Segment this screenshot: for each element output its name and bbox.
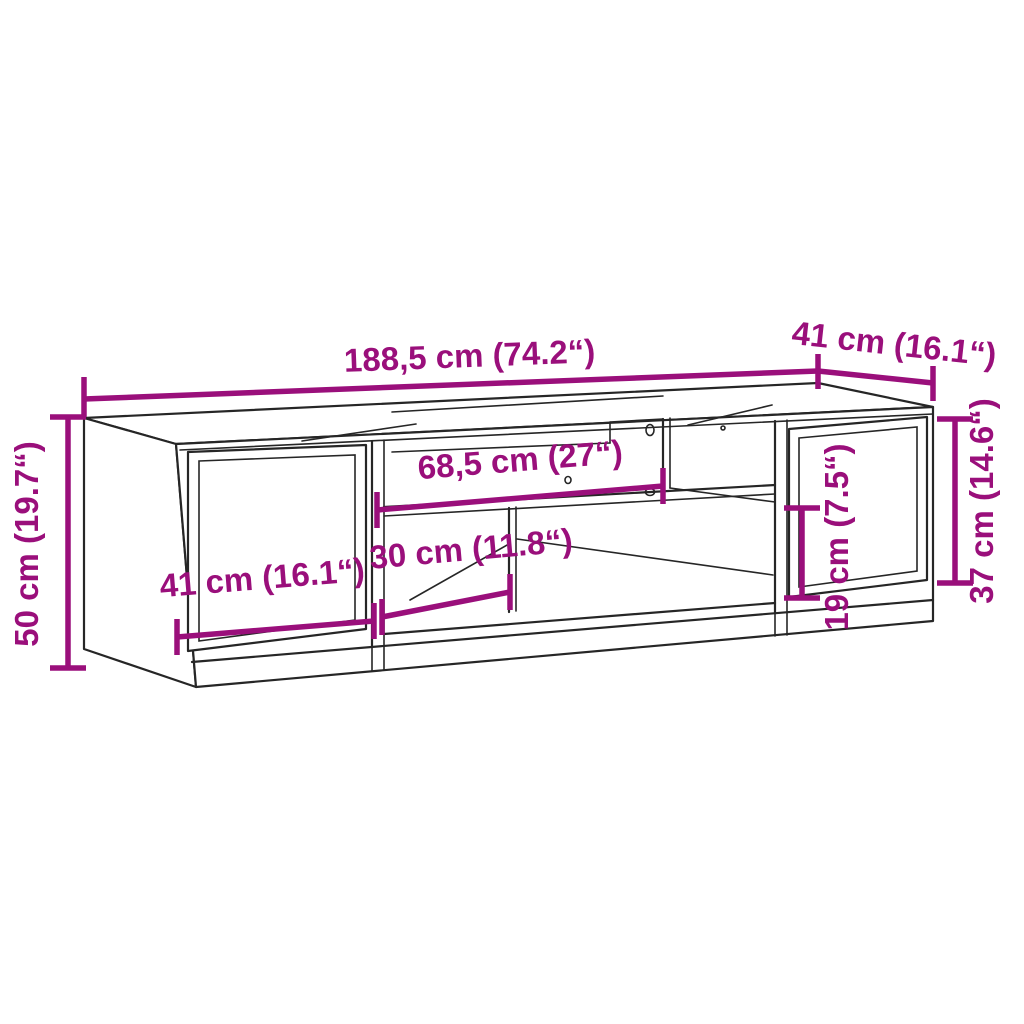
- overall-depth-label: 41 cm (16.1“): [790, 314, 998, 373]
- right-section-height-label: 37 cm (14.6“): [963, 398, 1000, 603]
- dim-right-section-height: 37 cm (14.6“): [937, 398, 1000, 603]
- dim-overall-height: 50 cm (19.7“): [8, 417, 86, 668]
- left-door: [188, 445, 366, 651]
- diagram-canvas: 188,5 cm (74.2“) 41 cm (16.1“) 50 cm (19…: [0, 0, 1024, 1024]
- dimension-diagram-svg: 188,5 cm (74.2“) 41 cm (16.1“) 50 cm (19…: [0, 0, 1024, 1024]
- overall-height-label: 50 cm (19.7“): [8, 441, 45, 646]
- left-door-outer-edge: [188, 445, 366, 651]
- side-compartment-height-label: 19 cm (7.5“): [818, 443, 855, 630]
- overall-width-label: 188,5 cm (74.2“): [343, 332, 596, 379]
